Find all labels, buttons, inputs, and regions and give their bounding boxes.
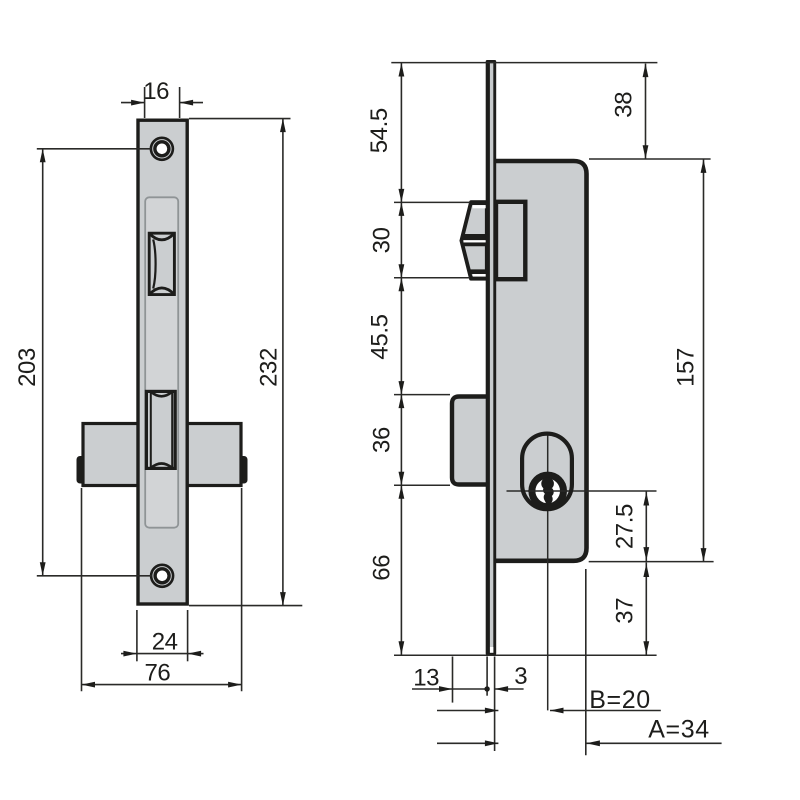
svg-text:3: 3: [514, 663, 527, 690]
svg-text:76: 76: [144, 659, 170, 686]
svg-text:A=34: A=34: [648, 715, 709, 743]
svg-text:157: 157: [672, 348, 699, 387]
svg-text:30: 30: [368, 227, 395, 253]
svg-text:38: 38: [611, 92, 638, 118]
svg-text:232: 232: [255, 348, 282, 387]
svg-text:13: 13: [413, 664, 439, 691]
svg-text:36: 36: [368, 427, 395, 453]
svg-text:54.5: 54.5: [366, 108, 393, 153]
svg-text:66: 66: [368, 555, 395, 581]
svg-text:16: 16: [143, 78, 169, 105]
svg-text:203: 203: [14, 348, 41, 387]
svg-text:24: 24: [152, 628, 178, 655]
svg-text:B=20: B=20: [589, 686, 650, 714]
svg-text:37: 37: [611, 598, 638, 624]
svg-text:45.5: 45.5: [366, 314, 393, 359]
svg-text:27.5: 27.5: [611, 504, 638, 549]
